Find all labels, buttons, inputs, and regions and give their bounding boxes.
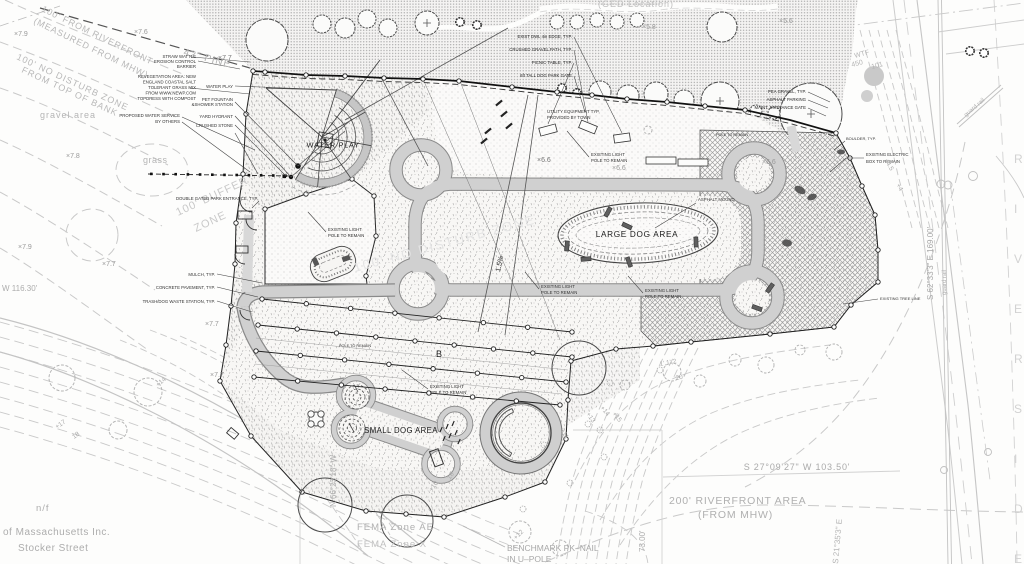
svg-text:IN U–POLE: IN U–POLE	[507, 554, 552, 564]
svg-text:×7.9: ×7.9	[18, 244, 32, 251]
svg-text:MULCH, TYP.: MULCH, TYP.	[188, 272, 215, 277]
svg-text:200' RIVERFRONT AREA: 200' RIVERFRONT AREA	[669, 495, 806, 507]
svg-text:SMALL DOG AREA: SMALL DOG AREA	[364, 426, 438, 435]
svg-text:×6.6: ×6.6	[762, 159, 776, 166]
svg-text:×5.8: ×5.8	[642, 24, 656, 31]
svg-text:EXISTING LIGHT: EXISTING LIGHT	[591, 152, 625, 157]
svg-text:ASPHALT PARKING: ASPHALT PARKING	[767, 97, 807, 102]
svg-text:I: I	[1014, 452, 1017, 466]
svg-text:×7.7: ×7.7	[102, 261, 116, 268]
svg-text:CRUSHED GRAVEL PATH, TYP.: CRUSHED GRAVEL PATH, TYP.	[509, 47, 572, 52]
svg-text:grass: grass	[143, 155, 168, 165]
svg-text:PROVIDED BY TOWN: PROVIDED BY TOWN	[547, 115, 590, 120]
svg-text:DOUBLE GATED PARK ENTRANCE, TY: DOUBLE GATED PARK ENTRANCE, TYP.	[176, 196, 258, 201]
svg-text:N 66°23'18" W: N 66°23'18" W	[329, 455, 338, 507]
svg-text:YARD HYDRANT: YARD HYDRANT	[199, 114, 233, 119]
svg-text:S: S	[1014, 402, 1022, 416]
svg-text:POLE TO REMAIN: POLE TO REMAIN	[339, 344, 371, 348]
svg-text:EXISTING LIGHT: EXISTING LIGHT	[541, 284, 575, 289]
svg-text:FEMA Zone X: FEMA Zone X	[357, 539, 427, 550]
svg-text:POLE TO REMAIN: POLE TO REMAIN	[541, 290, 577, 295]
svg-text:×5.6: ×5.6	[779, 18, 793, 25]
svg-text:EXISTING LIGHT: EXISTING LIGHT	[328, 227, 362, 232]
svg-text:MAINT. ENTRANCE GATE: MAINT. ENTRANCE GATE	[755, 105, 807, 110]
svg-text:BY OTHERS: BY OTHERS	[155, 119, 180, 124]
svg-text:S 27°09'27" W 103.50': S 27°09'27" W 103.50'	[744, 462, 851, 472]
svg-text:B: B	[436, 349, 442, 359]
svg-text:×7.7: ×7.7	[205, 321, 219, 328]
svg-text:(FROM MHW): (FROM MHW)	[698, 509, 773, 521]
svg-text:BENCHMARK PK–NAIL: BENCHMARK PK–NAIL	[507, 543, 599, 553]
svg-text:TOLERANT GRASS MIX: TOLERANT GRASS MIX	[148, 85, 196, 90]
svg-text:gravel area: gravel area	[40, 110, 96, 120]
svg-text:POLE TO REMAIN: POLE TO REMAIN	[716, 133, 748, 137]
svg-text:PICNIC TABLE, TYP.: PICNIC TABLE, TYP.	[532, 60, 572, 65]
svg-text:R: R	[1014, 352, 1023, 366]
svg-text:CONCRETE PAVEMENT, TYP.: CONCRETE PAVEMENT, TYP.	[156, 285, 215, 290]
svg-text:EXISTING LIGHT: EXISTING LIGHT	[430, 384, 464, 389]
svg-text:FROM WWW.NEWP.COM: FROM WWW.NEWP.COM	[145, 91, 196, 96]
svg-text:TRASH/DOG WASTE STATION, TYP.: TRASH/DOG WASTE STATION, TYP.	[143, 299, 215, 304]
svg-text:ASPHALT MOUND: ASPHALT MOUND	[698, 197, 735, 202]
svg-text:LARGE DOG AREA: LARGE DOG AREA	[596, 230, 679, 239]
svg-text:PEA GRAVEL, TYP.: PEA GRAVEL, TYP.	[768, 89, 806, 94]
svg-text:R: R	[1014, 152, 1023, 166]
svg-text:PROPOSED WATER SERVICE: PROPOSED WATER SERVICE	[119, 113, 180, 118]
svg-text:CRUSHED STONE: CRUSHED STONE	[196, 123, 233, 128]
svg-text:×7.8: ×7.8	[66, 153, 80, 160]
svg-text:73.00': 73.00'	[638, 530, 647, 552]
svg-text:EXISTING ELECTRIC: EXISTING ELECTRIC	[866, 152, 909, 157]
svg-text:×6.6: ×6.6	[537, 157, 551, 164]
svg-text:S 62°33'3" E 169.00': S 62°33'3" E 169.00'	[926, 226, 935, 300]
svg-text:×7.7: ×7.7	[210, 372, 224, 379]
svg-text:EXISTING LIGHT: EXISTING LIGHT	[645, 288, 679, 293]
svg-text:n/f: n/f	[36, 503, 50, 514]
svg-text:×6.6: ×6.6	[612, 165, 626, 172]
svg-text:POLE TO REMAIN: POLE TO REMAIN	[645, 294, 681, 299]
svg-text:D: D	[1014, 502, 1023, 516]
svg-text:BARRIER: BARRIER	[177, 64, 196, 69]
svg-text:(GED Location): (GED Location)	[598, 0, 674, 9]
svg-text:W 116.30': W 116.30'	[2, 284, 38, 293]
svg-text:WATER PLAY: WATER PLAY	[206, 84, 233, 89]
svg-text:ENGLAND COASTAL SALT: ENGLAND COASTAL SALT	[143, 80, 197, 85]
svg-text:of Massachusetts Inc.: of Massachusetts Inc.	[3, 527, 110, 538]
svg-text:REVEGETATION AREA: NEW: REVEGETATION AREA: NEW	[138, 74, 197, 79]
svg-text:POLE TO REMAIN: POLE TO REMAIN	[591, 158, 627, 163]
svg-text:EXISTING TREE LINE: EXISTING TREE LINE	[880, 296, 921, 301]
svg-text:guard rail: guard rail	[942, 270, 948, 295]
svg-text:E: E	[1014, 302, 1022, 316]
svg-text:UTILITY EQUIPMENT TYP,: UTILITY EQUIPMENT TYP,	[547, 109, 600, 114]
svg-text:EXIST DWL 4in EDGE, TYP.: EXIST DWL 4in EDGE, TYP.	[517, 34, 572, 39]
svg-text:WATER PLAY: WATER PLAY	[307, 141, 360, 150]
svg-text:FEMA Zone AE: FEMA Zone AE	[357, 522, 434, 533]
svg-text:×7.9: ×7.9	[14, 31, 28, 38]
svg-text:×7.6: ×7.6	[134, 29, 148, 36]
svg-text:I: I	[1014, 202, 1017, 216]
svg-text:V: V	[1014, 252, 1022, 266]
svg-text:&SHOWER STATION: &SHOWER STATION	[192, 102, 233, 107]
svg-text:6ft TALL DOG PARK GATE: 6ft TALL DOG PARK GATE	[520, 73, 572, 78]
svg-text:E: E	[1014, 552, 1022, 564]
svg-text:Stocker Street: Stocker Street	[18, 543, 88, 554]
svg-text:TOPDRESS WITH COMPOST: TOPDRESS WITH COMPOST	[137, 96, 196, 101]
svg-text:POLE TO REMAIN: POLE TO REMAIN	[430, 390, 466, 395]
svg-text:POLE TO REMAIN: POLE TO REMAIN	[328, 233, 364, 238]
svg-text:BOULDER, TYP.: BOULDER, TYP.	[846, 136, 876, 141]
